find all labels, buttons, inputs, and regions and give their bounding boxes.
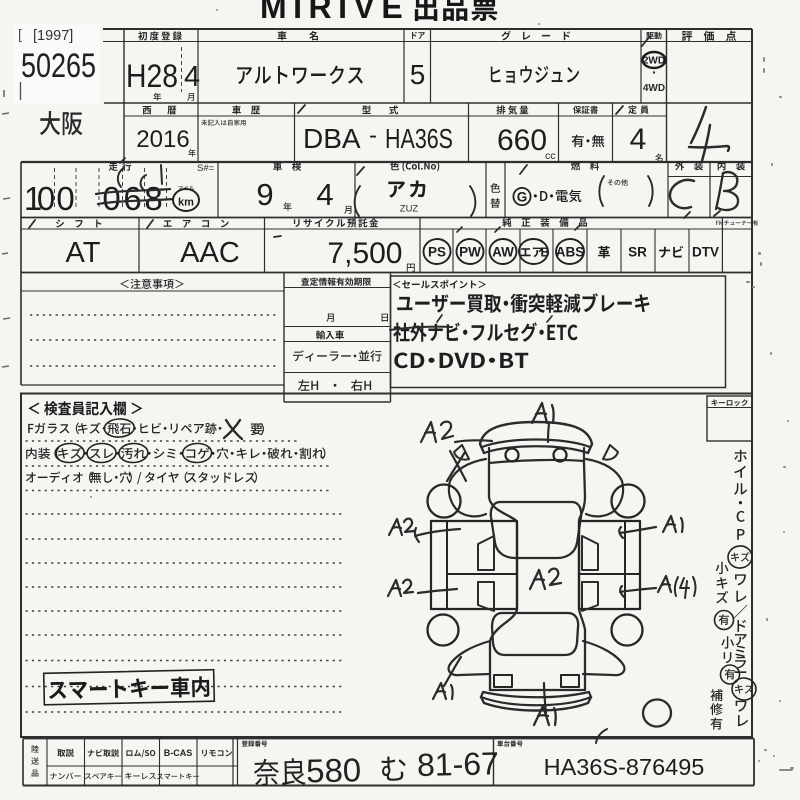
svg-text:580: 580 [306,751,362,789]
svg-text:[1997]: [1997] [33,28,73,44]
svg-text:4: 4 [184,61,200,93]
svg-text:G: G [517,190,528,205]
svg-text:DTV: DTV [692,245,719,260]
svg-text:0: 0 [37,180,55,217]
svg-text:AT: AT [66,237,101,269]
svg-text:-: - [369,122,377,149]
svg-text:4: 4 [316,177,333,212]
svg-text:50265: 50265 [21,47,96,85]
svg-text:AAC: AAC [180,237,240,269]
svg-text:ABS: ABS [556,245,585,260]
svg-text:MIRIVE: MIRIVE [260,0,409,25]
svg-text:SR: SR [628,245,647,260]
svg-text:4WD: 4WD [643,83,665,94]
svg-text:[: [ [18,26,22,42]
svg-text:8: 8 [144,180,162,217]
svg-text:PW: PW [459,245,481,260]
svg-text:ZUZ: ZUZ [400,204,419,215]
svg-text:81-67: 81-67 [417,745,500,783]
svg-text:4: 4 [630,123,647,156]
svg-text:H28: H28 [126,58,178,94]
svg-text:HA36S: HA36S [385,123,453,154]
svg-text:7,500: 7,500 [327,237,402,270]
svg-text:660: 660 [497,124,547,157]
svg-text:0: 0 [56,180,74,217]
svg-text:6: 6 [123,180,141,217]
svg-text:DBA: DBA [303,123,361,154]
svg-text:km: km [178,197,194,209]
svg-text:S#=: S#= [197,163,215,174]
svg-text:HA36S-876495: HA36S-876495 [544,754,705,780]
svg-text:AW: AW [492,245,514,260]
svg-text:B-CAS: B-CAS [164,748,193,758]
svg-text:PS: PS [428,245,446,260]
svg-text:9: 9 [256,177,273,212]
svg-text:cc: cc [545,150,556,162]
svg-text:5: 5 [410,59,426,90]
svg-text:0: 0 [102,180,120,217]
svg-text:2016: 2016 [136,126,189,153]
